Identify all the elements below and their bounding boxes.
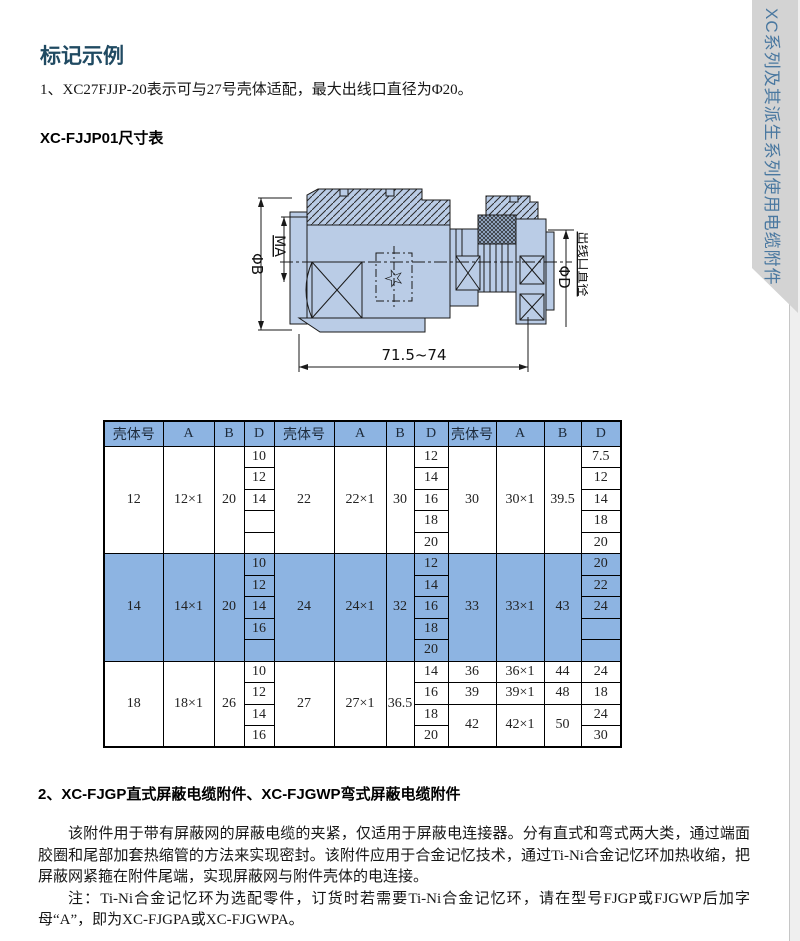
table-cell: 14	[104, 554, 163, 662]
table-cell: 24	[274, 554, 334, 662]
table-cell: 12×1	[163, 446, 214, 554]
table-cell	[244, 532, 274, 554]
connector-body	[280, 189, 572, 332]
table-cell: 36×1	[496, 661, 544, 683]
table-cell: 14	[244, 704, 274, 726]
table-row: 1818×126102727×136.5143636×14424	[104, 661, 621, 683]
table-row: 1414×120102424×132123333×14320	[104, 554, 621, 576]
section2-paragraph: 该附件用于带有屏蔽网的屏蔽电缆的夹紧，仅适用于屏蔽电连接器。分有直式和弯式两大类…	[38, 824, 750, 889]
table-header-cell: 壳体号	[104, 421, 163, 446]
table-cell: 30	[386, 446, 414, 554]
table-cell	[244, 640, 274, 662]
dim-ma-label: MA	[271, 235, 287, 257]
table-cell: 30	[448, 446, 496, 554]
table-cell: 18	[581, 511, 621, 533]
table-cell: 18×1	[163, 661, 214, 747]
table-cell	[581, 640, 621, 662]
table-header-cell: D	[414, 421, 448, 446]
table-cell: 39.5	[544, 446, 581, 554]
table-cell: 14	[581, 489, 621, 511]
dimension-table: 壳体号ABD壳体号ABD壳体号ABD 1212×120102222×130123…	[103, 420, 622, 748]
table-cell: 7.5	[581, 446, 621, 468]
table-cell: 27	[274, 661, 334, 747]
table-cell: 12	[244, 683, 274, 705]
table-cell: 50	[544, 704, 581, 747]
table-header-cell: 壳体号	[274, 421, 334, 446]
table-header-cell: D	[244, 421, 274, 446]
table-cell: 39×1	[496, 683, 544, 705]
chapter-side-tab-label: XC系列及其派生系列使用电缆附件	[761, 8, 786, 286]
table-cell: 14	[244, 489, 274, 511]
table-cell: 18	[414, 511, 448, 533]
table-cell: 26	[214, 661, 244, 747]
table-cell: 18	[104, 661, 163, 747]
table-cell: 10	[244, 661, 274, 683]
section2-heading: 2、XC-FJGP直式屏蔽电缆附件、XC-FJGWP弯式屏蔽电缆附件	[38, 783, 461, 804]
table-cell: 33×1	[496, 554, 544, 662]
page-title: 标记示例	[40, 40, 124, 70]
table-cell: 12	[244, 575, 274, 597]
connector-technical-drawing: ☆ ΦB MA ΦD 出线口直径 71.5~74	[228, 182, 588, 378]
table-cell	[244, 511, 274, 533]
table-cell: 14	[244, 597, 274, 619]
table-header-row: 壳体号ABD壳体号ABD壳体号ABD	[104, 421, 621, 446]
table-cell: 12	[414, 554, 448, 576]
table-cell: 16	[414, 489, 448, 511]
table-cell: 18	[581, 683, 621, 705]
table-header-cell: D	[581, 421, 621, 446]
table-header-cell: A	[496, 421, 544, 446]
table-cell: 12	[414, 446, 448, 468]
table-cell: 14	[414, 468, 448, 490]
table-cell	[581, 618, 621, 640]
table-cell: 16	[414, 597, 448, 619]
table-cell: 20	[581, 532, 621, 554]
table-cell: 14	[414, 661, 448, 683]
table-cell: 30×1	[496, 446, 544, 554]
table-cell: 12	[581, 468, 621, 490]
table-cell: 20	[414, 532, 448, 554]
table-cell: 27×1	[334, 661, 386, 747]
table-header-cell: B	[214, 421, 244, 446]
dim-phi-b-label: ΦB	[248, 253, 266, 275]
table-cell: 43	[544, 554, 581, 662]
table-header-cell: B	[544, 421, 581, 446]
table-cell: 14×1	[163, 554, 214, 662]
table-cell: 24×1	[334, 554, 386, 662]
table-row: 1212×120102222×130123030×139.57.5	[104, 446, 621, 468]
dim-length-label: 71.5~74	[381, 346, 446, 364]
table-cell: 22×1	[334, 446, 386, 554]
marking-example-note: 1、XC27FJJP-20表示可与27号壳体适配，最大出线口直径为Φ20。	[40, 78, 473, 99]
table-cell: 20	[414, 726, 448, 748]
table-cell: 42	[448, 704, 496, 747]
table-cell: 36.5	[386, 661, 414, 747]
section2-body: 该附件用于带有屏蔽网的屏蔽电缆的夹紧，仅适用于屏蔽电连接器。分有直式和弯式两大类…	[38, 824, 750, 932]
table-cell: 18	[414, 704, 448, 726]
table-cell: 24	[581, 661, 621, 683]
table-cell: 33	[448, 554, 496, 662]
table-cell: 18	[414, 618, 448, 640]
table-cell: 39	[448, 683, 496, 705]
table-cell: 24	[581, 704, 621, 726]
table-cell: 16	[244, 726, 274, 748]
document-page: 标记示例 1、XC27FJJP-20表示可与27号壳体适配，最大出线口直径为Φ2…	[0, 0, 800, 941]
table-cell: 20	[214, 446, 244, 554]
table-cell: 10	[244, 554, 274, 576]
table-cell: 42×1	[496, 704, 544, 747]
table-header-cell: A	[334, 421, 386, 446]
chapter-side-tab[interactable]: XC系列及其派生系列使用电缆附件	[752, 0, 798, 313]
table-cell: 12	[104, 446, 163, 554]
table-cell: 44	[544, 661, 581, 683]
dimension-table-heading: XC-FJJP01尺寸表	[40, 127, 163, 148]
table-cell: 36	[448, 661, 496, 683]
section2-note: 注：Ti-Ni合金记忆环为选配零件，订货时若需要Ti-Ni合金记忆环，请在型号F…	[38, 889, 750, 932]
table-cell: 30	[581, 726, 621, 748]
table-header-cell: B	[386, 421, 414, 446]
table-cell: 48	[544, 683, 581, 705]
table-cell: 22	[274, 446, 334, 554]
table-cell: 22	[581, 575, 621, 597]
table-cell: 20	[581, 554, 621, 576]
table-header-cell: 壳体号	[448, 421, 496, 446]
table-cell: 16	[414, 683, 448, 705]
table-cell: 24	[581, 597, 621, 619]
table-header-cell: A	[163, 421, 214, 446]
dim-outlet-label: 出线口直径	[575, 231, 588, 296]
table-cell: 20	[214, 554, 244, 662]
table-cell: 14	[414, 575, 448, 597]
table-cell: 20	[414, 640, 448, 662]
dim-phi-d-label: ΦD	[555, 265, 573, 288]
dimension-table-body: 1212×120102222×130123030×139.57.51214121…	[104, 446, 621, 747]
table-cell: 10	[244, 446, 274, 468]
table-cell: 32	[386, 554, 414, 662]
table-cell: 16	[244, 618, 274, 640]
table-cell: 12	[244, 468, 274, 490]
